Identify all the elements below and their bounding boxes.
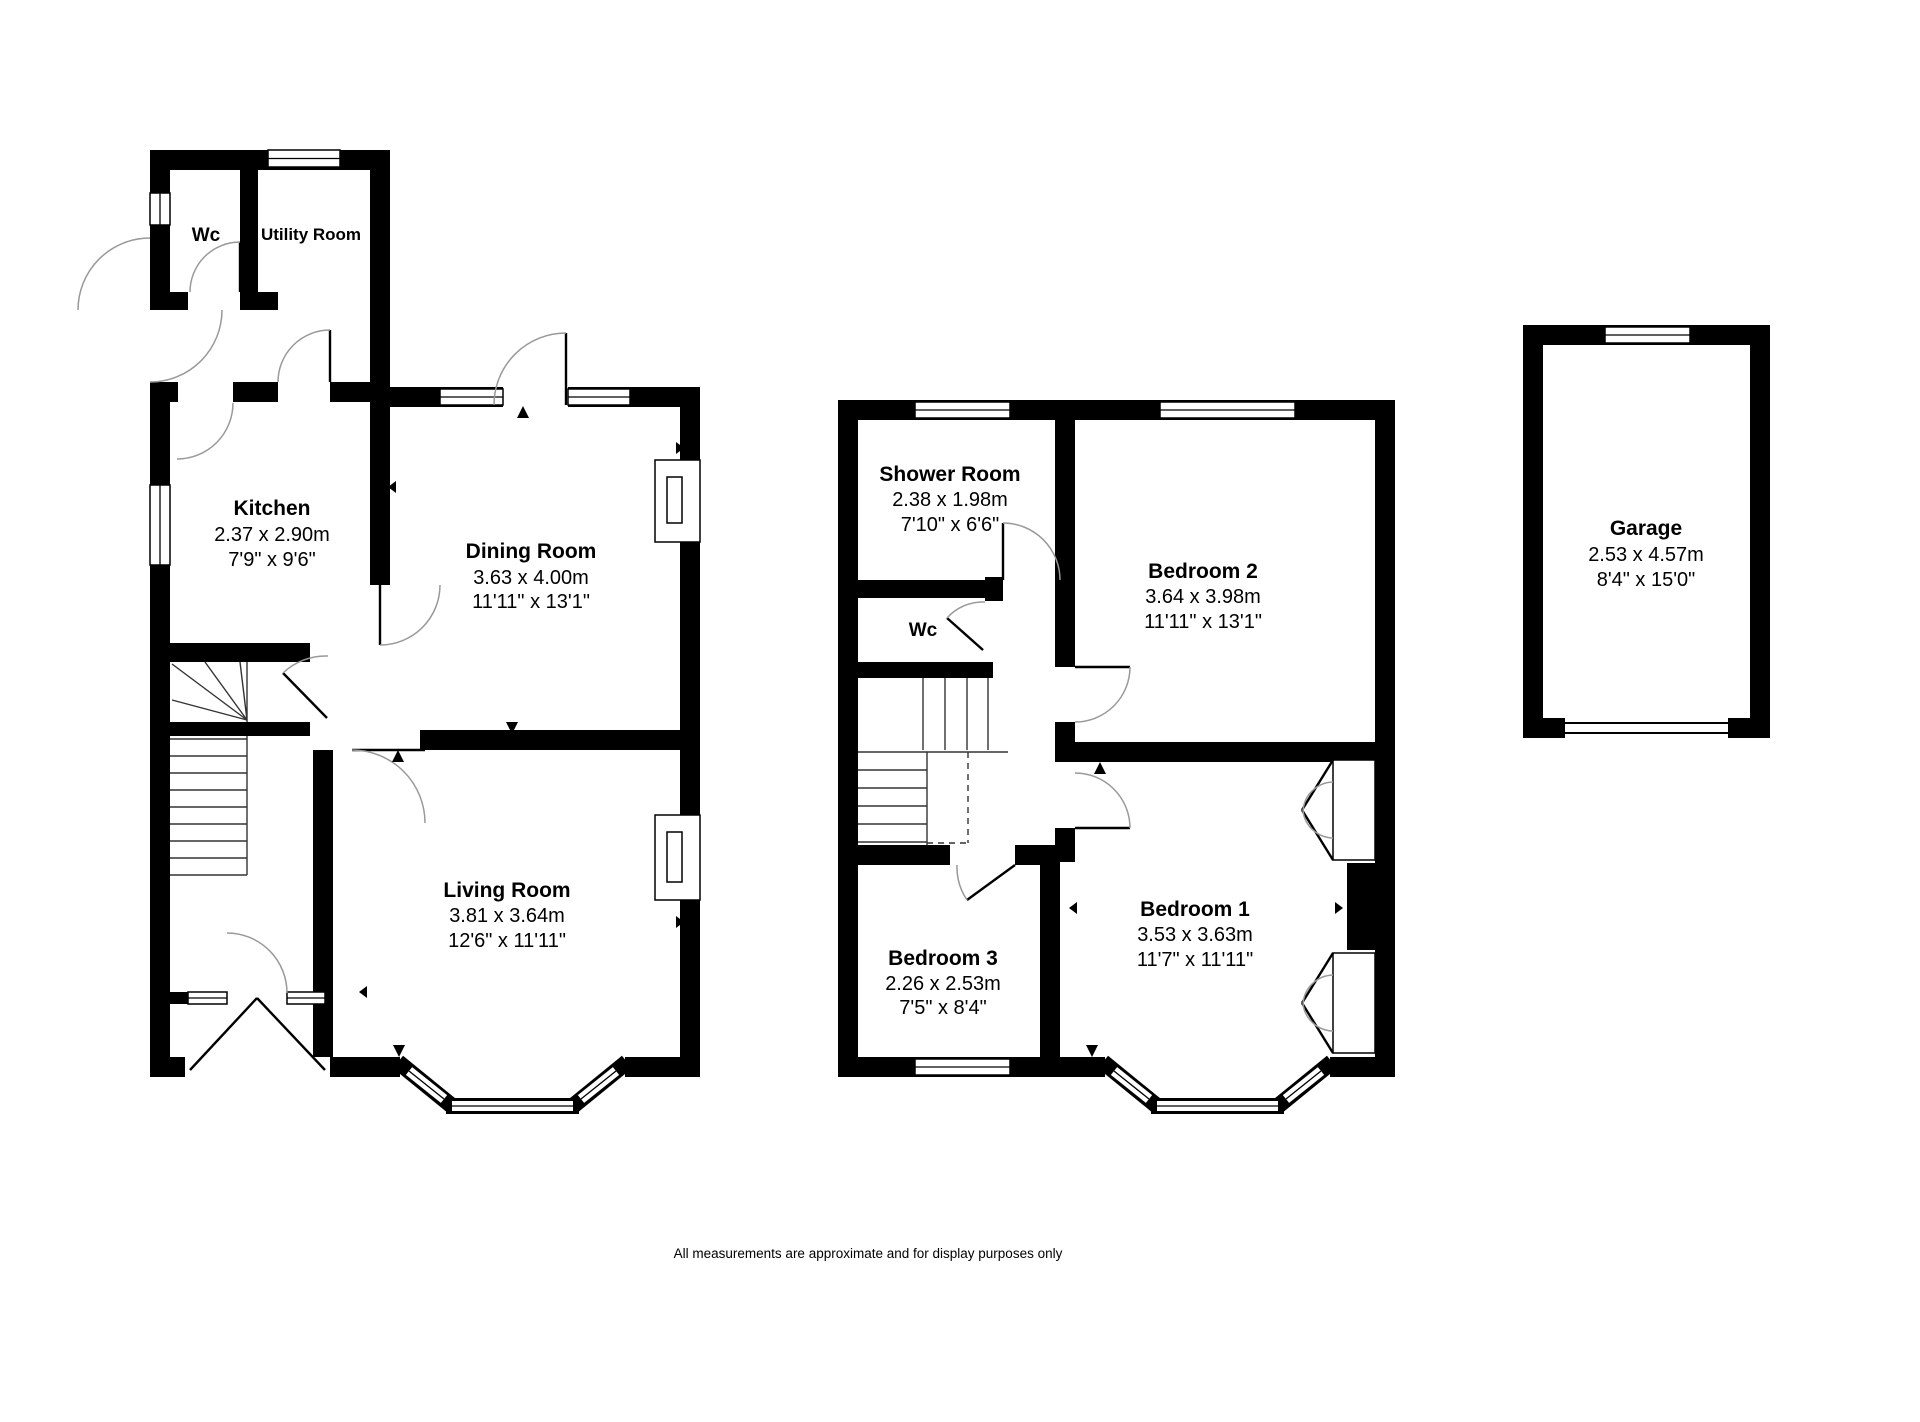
svg-text:7'9" x 9'6": 7'9" x 9'6" (228, 549, 315, 571)
staircase (858, 678, 1008, 845)
door-swing (494, 333, 566, 405)
window (915, 1059, 1010, 1075)
svg-text:3.81 x 3.64m: 3.81 x 3.64m (449, 905, 565, 927)
window (287, 992, 325, 1004)
door-swing (278, 330, 330, 382)
door-swing (947, 602, 985, 650)
window (150, 485, 170, 565)
svg-text:Living Room: Living Room (443, 879, 570, 902)
room-label-wc-ground: Wc (192, 225, 221, 246)
staircase (170, 662, 247, 875)
window-recess (655, 815, 700, 900)
garage-plan: Garage 2.53 x 4.57m 8'4" x 15'0" (1523, 325, 1770, 738)
room-label-bedroom3: Bedroom 3 2.26 x 2.53m 7'5" x 8'4" (885, 947, 1001, 1019)
ground-floor-plan: Wc Utility Room Kitchen 2.37 x 2.90m 7'9… (78, 150, 700, 1106)
svg-text:3.63 x 4.00m: 3.63 x 4.00m (473, 567, 589, 589)
floorplan-page: Wc Utility Room Kitchen 2.37 x 2.90m 7'9… (0, 0, 1920, 1422)
window-recess (655, 460, 700, 542)
svg-text:Garage: Garage (1610, 517, 1682, 540)
svg-text:Kitchen: Kitchen (233, 497, 310, 520)
svg-text:7'10" x 6'6": 7'10" x 6'6" (901, 514, 1000, 536)
svg-text:Dining Room: Dining Room (466, 540, 597, 563)
svg-text:11'11" x 13'1": 11'11" x 13'1" (1144, 611, 1262, 633)
window (915, 402, 1010, 418)
svg-text:2.37 x 2.90m: 2.37 x 2.90m (214, 524, 330, 546)
room-label-living: Living Room 3.81 x 3.64m 12'6" x 11'11" (443, 879, 570, 952)
door-swing (1075, 773, 1130, 828)
room-label-kitchen: Kitchen 2.37 x 2.90m 7'9" x 9'6" (214, 497, 330, 571)
window (1605, 327, 1690, 343)
svg-text:12'6" x 11'11": 12'6" x 11'11" (448, 930, 566, 952)
svg-text:Shower Room: Shower Room (879, 463, 1020, 486)
svg-text:Bedroom 1: Bedroom 1 (1140, 898, 1250, 921)
door-swing (1003, 523, 1060, 580)
svg-text:11'7" x 11'11": 11'7" x 11'11" (1137, 949, 1253, 971)
room-label-utility: Utility Room (261, 225, 361, 244)
svg-text:11'11" x 13'1": 11'11" x 13'1" (472, 591, 590, 613)
window (1160, 402, 1295, 418)
bay-window (1103, 1062, 1332, 1106)
room-label-garage: Garage 2.53 x 4.57m 8'4" x 15'0" (1588, 517, 1704, 591)
opening-marker (359, 986, 367, 998)
door-swing (1075, 667, 1130, 722)
door-swing (957, 865, 1015, 900)
door-swing (380, 585, 440, 645)
opening-marker (393, 1045, 405, 1057)
door-swing (283, 656, 328, 718)
svg-text:7'5" x 8'4": 7'5" x 8'4" (899, 997, 986, 1019)
svg-text:2.26 x 2.53m: 2.26 x 2.53m (885, 973, 1001, 995)
garage-door (1565, 723, 1728, 733)
svg-text:2.53 x 4.57m: 2.53 x 4.57m (1588, 544, 1704, 566)
floorplan-drawing: Wc Utility Room Kitchen 2.37 x 2.90m 7'9… (0, 0, 1920, 1422)
svg-text:Bedroom 3: Bedroom 3 (888, 947, 998, 970)
disclaimer-text: All measurements are approximate and for… (674, 1246, 1063, 1261)
room-label-bedroom1: Bedroom 1 3.53 x 3.63m 11'7" x 11'11" (1137, 898, 1253, 971)
opening-marker (1086, 1045, 1098, 1057)
opening-marker (1069, 902, 1077, 914)
opening-marker (392, 750, 404, 762)
room-label-dining: Dining Room 3.63 x 4.00m 11'11" x 13'1" (466, 540, 597, 613)
door-swing (352, 750, 425, 823)
window (268, 150, 340, 167)
door-swing (190, 242, 240, 292)
opening-marker (1335, 902, 1343, 914)
room-label-bedroom2: Bedroom 2 3.64 x 3.98m 11'11" x 13'1" (1144, 560, 1262, 633)
svg-text:Bedroom 2: Bedroom 2 (1148, 560, 1258, 583)
ground-floor-walls (150, 150, 700, 1077)
window (568, 389, 630, 405)
window (188, 992, 227, 1004)
window (150, 193, 170, 225)
wardrobe (1302, 760, 1375, 860)
opening-marker (1094, 762, 1106, 774)
wardrobe (1302, 953, 1375, 1053)
bay-window (398, 1062, 627, 1106)
svg-text:3.53 x 3.63m: 3.53 x 3.63m (1137, 924, 1253, 946)
opening-marker (517, 406, 529, 418)
svg-text:3.64 x 3.98m: 3.64 x 3.98m (1145, 586, 1261, 608)
svg-text:2.38 x 1.98m: 2.38 x 1.98m (892, 489, 1008, 511)
first-floor-plan: Shower Room 2.38 x 1.98m 7'10" x 6'6" Wc… (838, 400, 1395, 1106)
room-label-shower: Shower Room 2.38 x 1.98m 7'10" x 6'6" (879, 463, 1020, 536)
svg-text:8'4" x 15'0": 8'4" x 15'0" (1597, 569, 1696, 591)
room-label-wc-first: Wc (909, 620, 938, 641)
door-swing (177, 403, 233, 459)
